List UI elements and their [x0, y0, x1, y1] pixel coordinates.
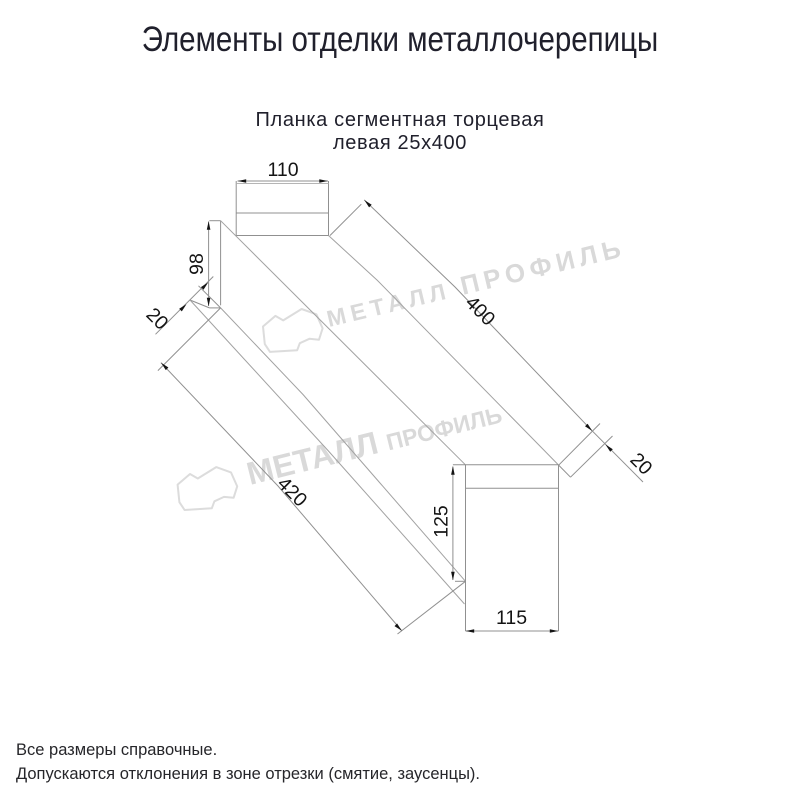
- svg-text:20: 20: [142, 304, 173, 335]
- svg-text:98: 98: [186, 253, 208, 275]
- svg-text:115: 115: [496, 607, 527, 629]
- svg-text:110: 110: [267, 159, 298, 181]
- svg-text:20: 20: [626, 449, 657, 480]
- svg-text:125: 125: [431, 505, 453, 538]
